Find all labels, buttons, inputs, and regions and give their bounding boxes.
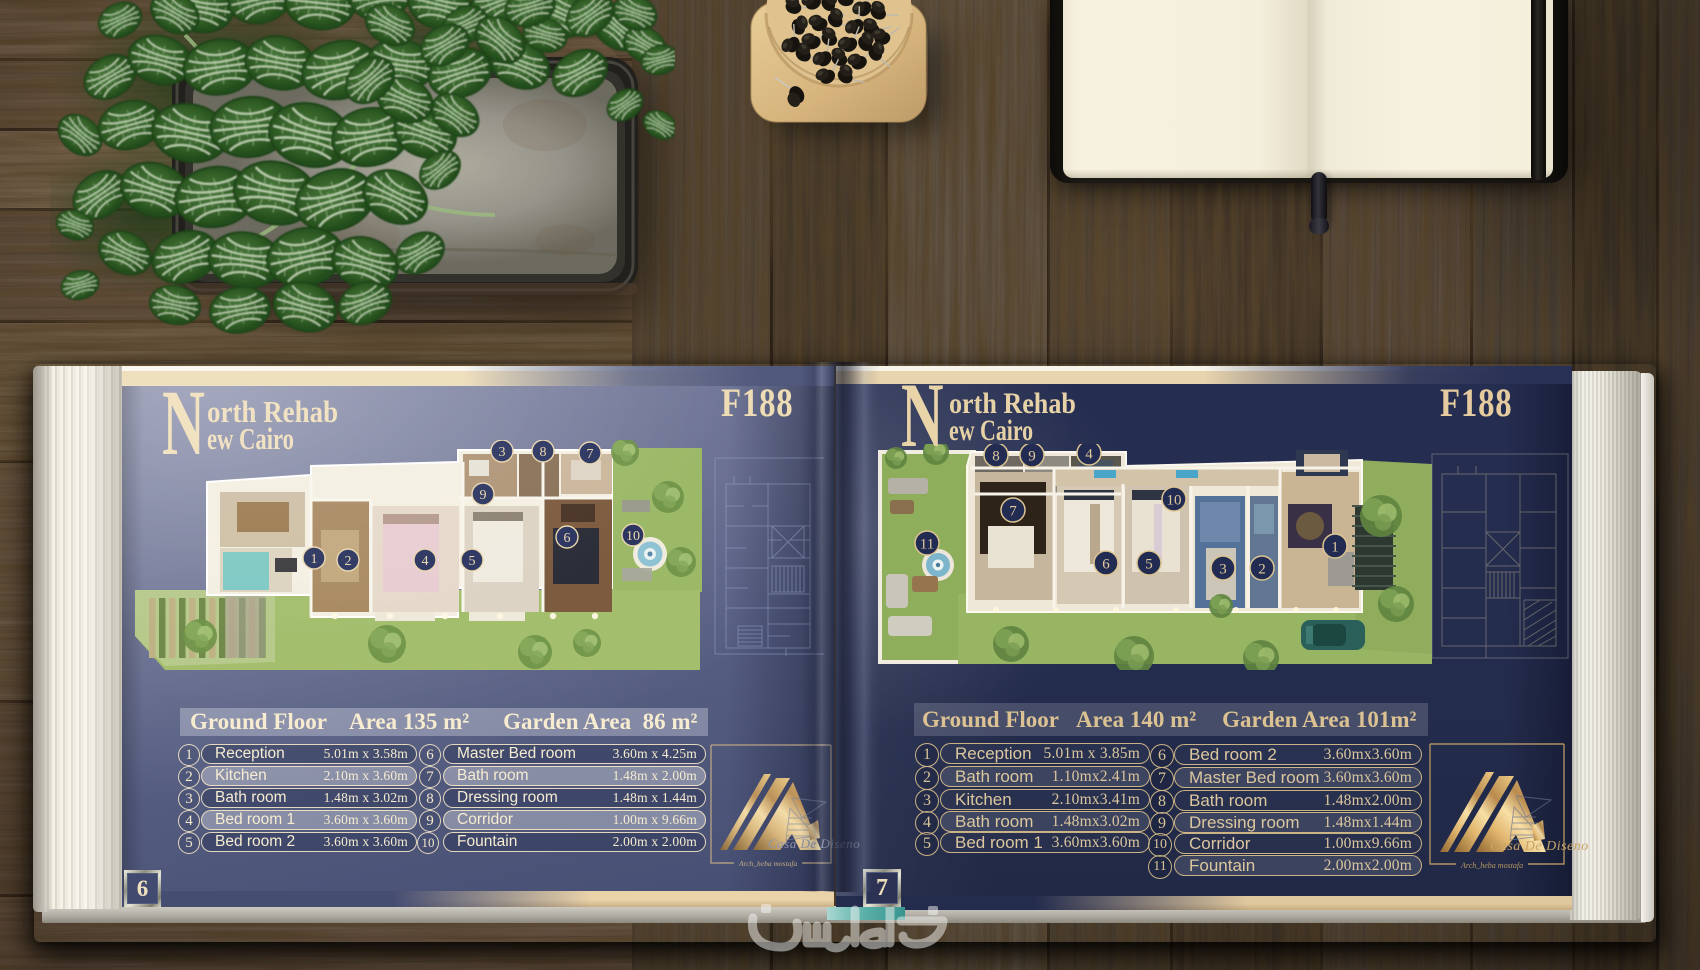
svg-text:Arch_heba mostafa: Arch_heba mostafa bbox=[1460, 861, 1523, 870]
svg-text:4: 4 bbox=[1085, 446, 1093, 462]
svg-text:Arch_heba mostafa: Arch_heba mostafa bbox=[738, 859, 798, 868]
svg-text:3: 3 bbox=[1219, 561, 1227, 577]
svg-text:1: 1 bbox=[1331, 539, 1339, 555]
svg-text:7: 7 bbox=[1009, 503, 1017, 519]
svg-text:2: 2 bbox=[1258, 561, 1266, 577]
svg-text:9: 9 bbox=[1028, 448, 1036, 464]
svg-text:Casa De Diseno: Casa De Diseno bbox=[1490, 839, 1589, 854]
svg-text:8: 8 bbox=[992, 448, 1000, 464]
svg-text:6: 6 bbox=[1102, 556, 1110, 572]
svg-text:10: 10 bbox=[1167, 492, 1182, 508]
svg-text:11: 11 bbox=[920, 536, 934, 552]
svg-text:5: 5 bbox=[1145, 556, 1153, 572]
